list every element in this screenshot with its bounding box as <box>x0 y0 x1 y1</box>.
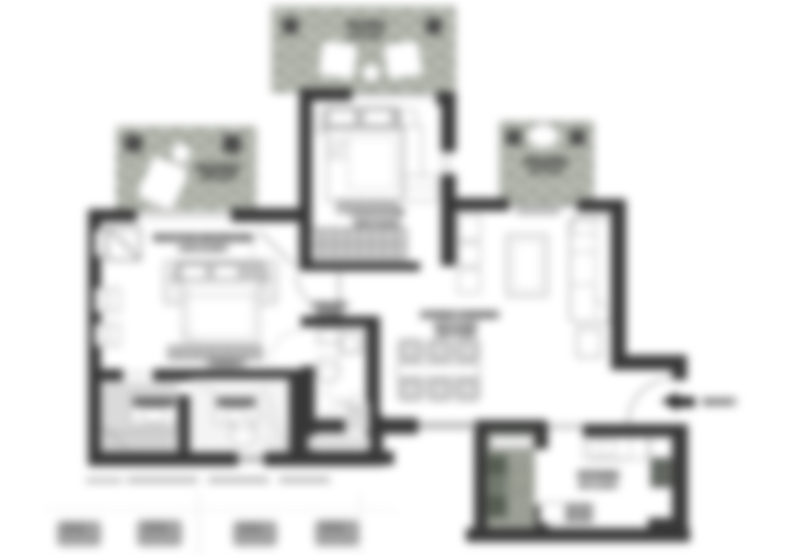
svg-text:10'0" X 11'0": 10'0" X 11'0" <box>355 219 400 228</box>
svg-text:SIT OUT: SIT OUT <box>347 21 384 30</box>
svg-text:13'4" X 4'0": 13'4" X 4'0" <box>347 33 385 40</box>
svg-text:BALCONY: BALCONY <box>197 164 239 173</box>
svg-text:5'0"X8'0": 5'0"X8'0" <box>316 311 344 318</box>
svg-text:KITCHEN: KITCHEN <box>578 471 617 480</box>
svg-text:11'6" X 18'8": 11'6" X 18'8" <box>435 331 477 338</box>
svg-text:11'6" X 19'0": 11'6" X 19'0" <box>434 321 479 330</box>
svg-text:6'0" X 5'0": 6'0" X 5'0" <box>530 168 562 175</box>
svg-text:MASTER BEDROOM: MASTER BEDROOM <box>155 233 253 243</box>
svg-text:ENTRY: ENTRY <box>705 398 733 407</box>
svg-text:TOILET: TOILET <box>317 301 344 310</box>
svg-text:LIVING / DINING: LIVING / DINING <box>420 310 497 320</box>
svg-text:TOILET: TOILET <box>213 361 238 368</box>
svg-text:11'3" X 12'0": 11'3" X 12'0" <box>182 244 227 253</box>
svg-text:BALCONY: BALCONY <box>525 157 567 166</box>
svg-text:9'2" X 5'0": 9'2" X 5'0" <box>202 175 234 182</box>
svg-text:8'0" X 10'0": 8'0" X 10'0" <box>579 483 617 490</box>
